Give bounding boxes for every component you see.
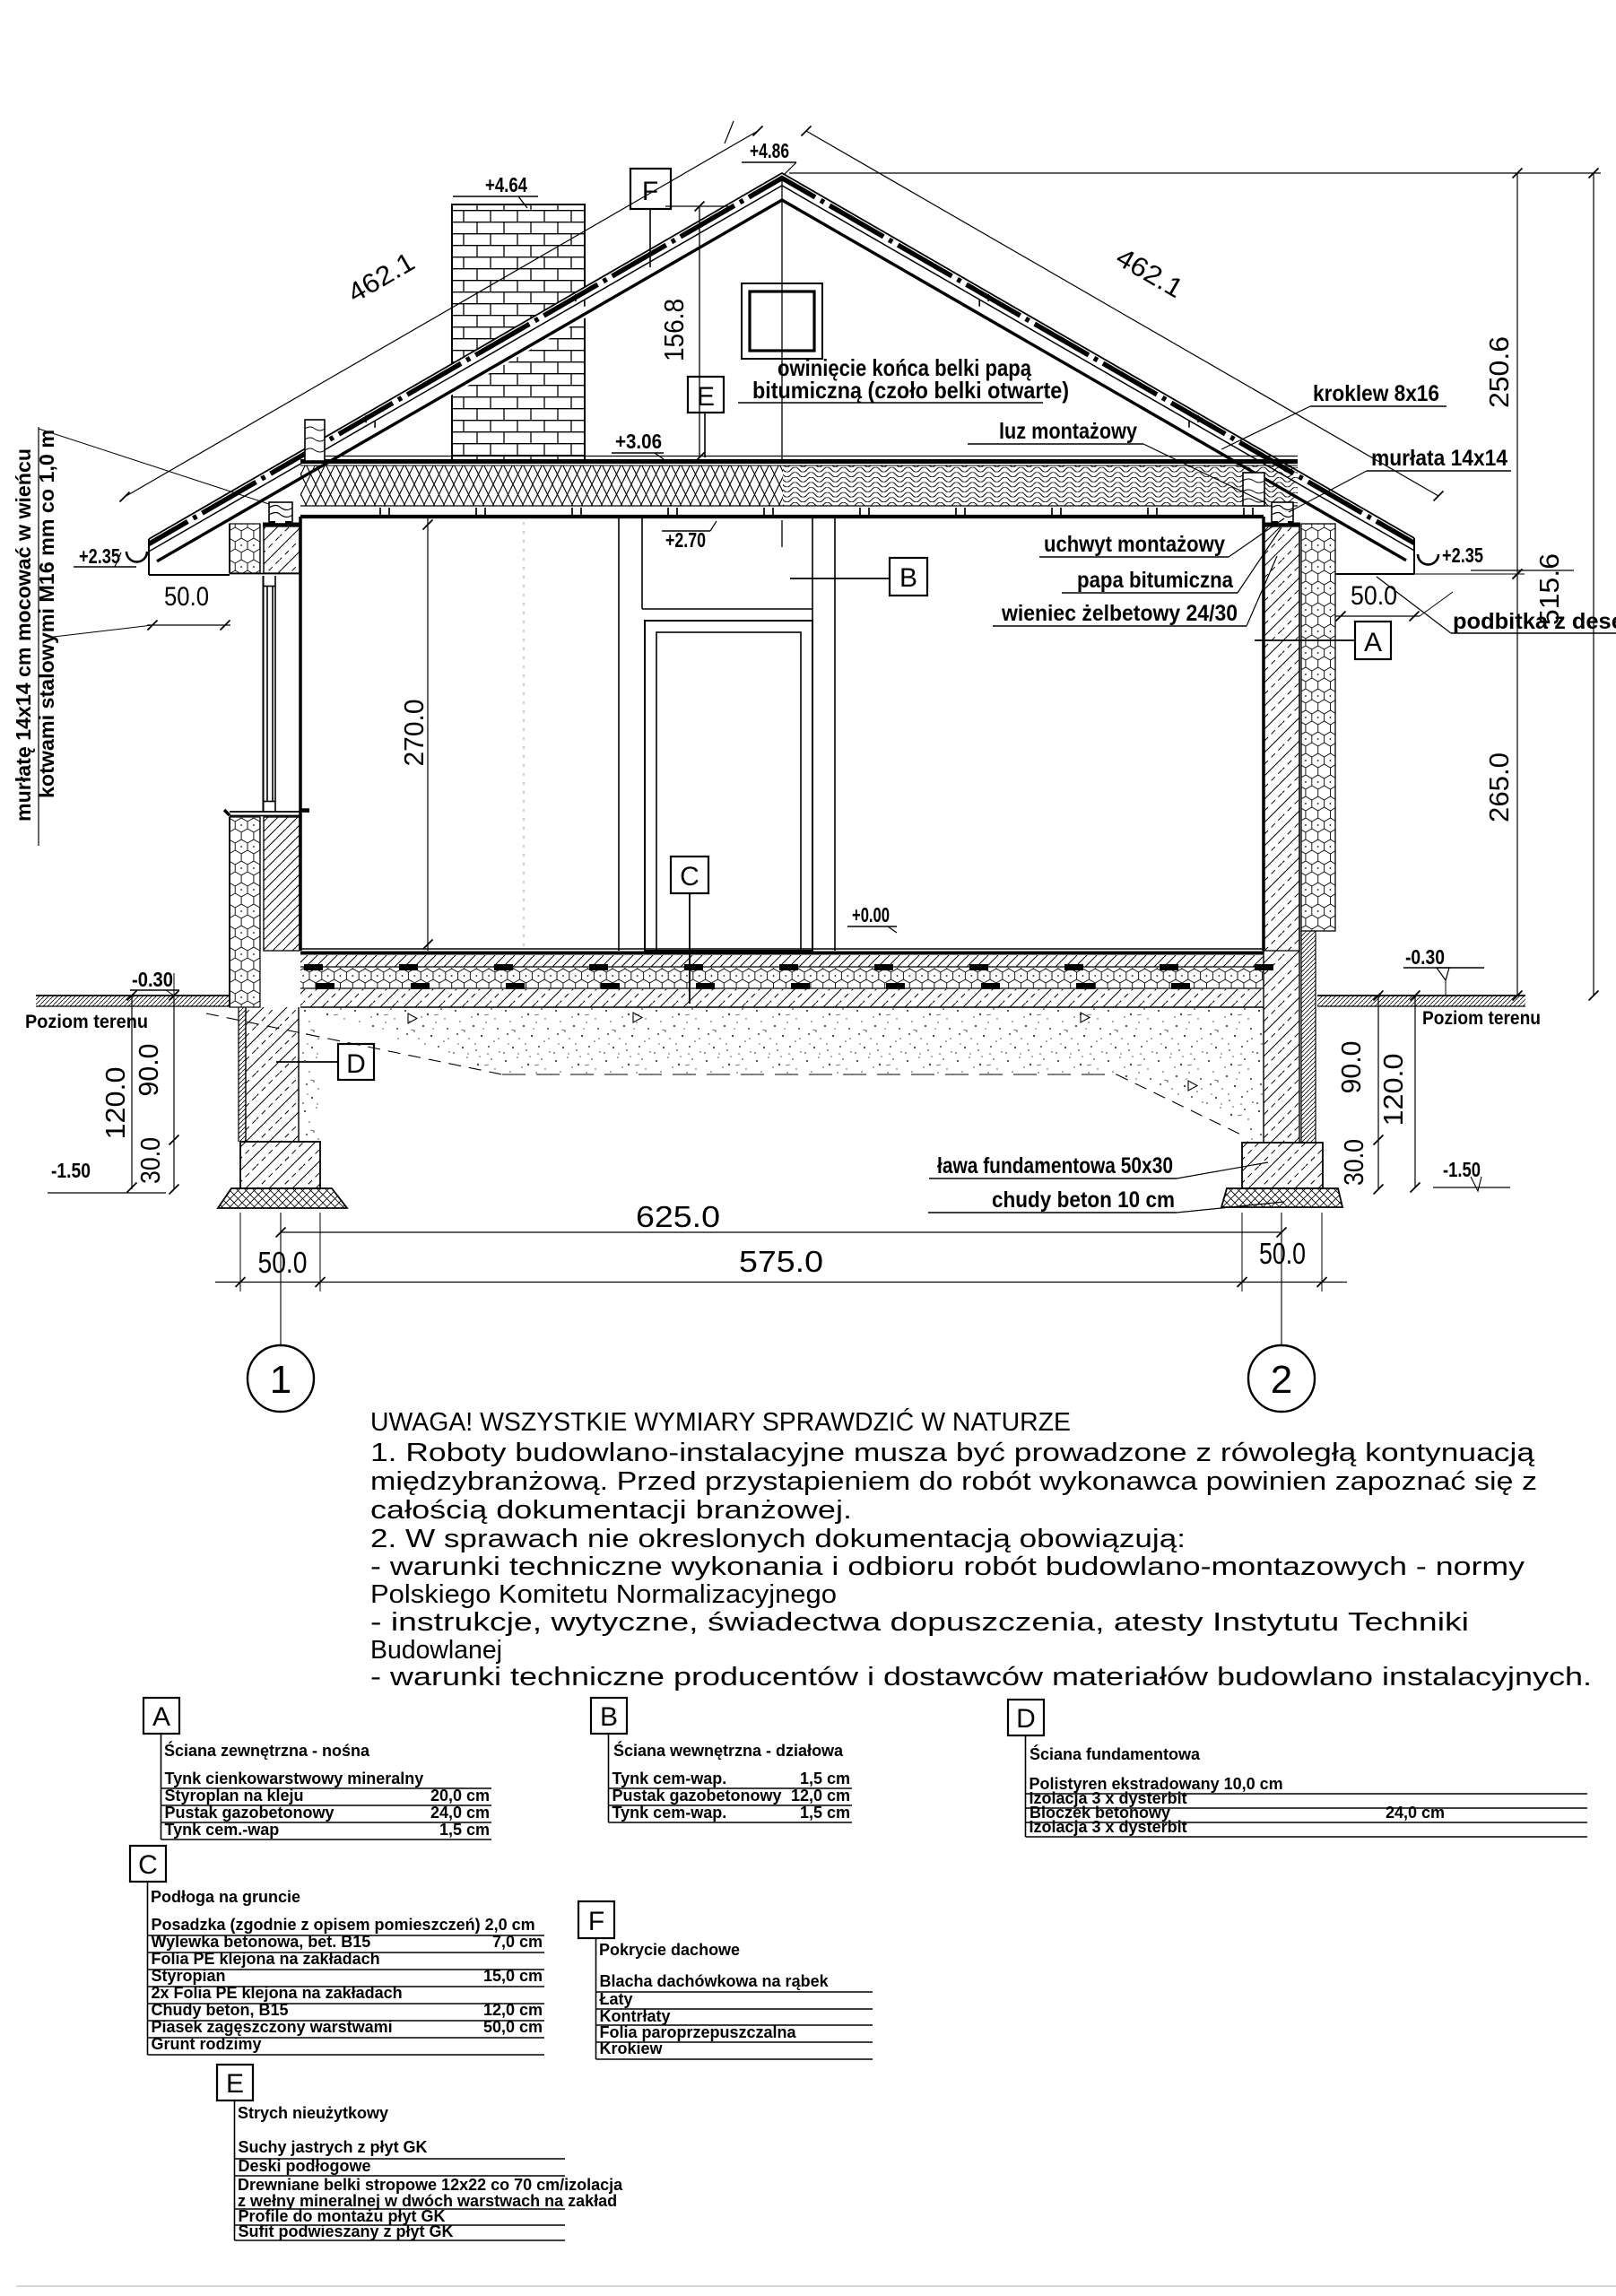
svg-text:E: E xyxy=(226,2069,244,2099)
svg-text:Pustak gazobetonowy: Pustak gazobetonowy xyxy=(613,1787,782,1805)
svg-text:całością dokumentacji branżowe: całością dokumentacji branżowej. xyxy=(370,1496,852,1525)
svg-text:-0.30: -0.30 xyxy=(1405,945,1445,969)
svg-text:murłatę 14x14 cm mocować w wie: murłatę 14x14 cm mocować w wieńcu xyxy=(12,448,35,822)
svg-text:Ściana zewnętrzna - nośna: Ściana zewnętrzna - nośna xyxy=(164,1741,370,1760)
svg-text:Styroplan na kleju: Styroplan na kleju xyxy=(165,1787,304,1805)
svg-text:C: C xyxy=(680,862,699,891)
svg-text:luz montażowy: luz montażowy xyxy=(999,419,1137,444)
svg-text:265.0: 265.0 xyxy=(1483,752,1515,822)
svg-text:-1.50: -1.50 xyxy=(51,1159,91,1182)
svg-text:12,0 cm: 12,0 cm xyxy=(483,2001,543,2019)
svg-text:uchwyt montażowy: uchwyt montażowy xyxy=(1044,532,1225,557)
svg-text:30.0: 30.0 xyxy=(1338,1139,1369,1186)
svg-text:Poziom terenu: Poziom terenu xyxy=(1422,1008,1541,1029)
svg-text:chudy beton 10 cm: chudy beton 10 cm xyxy=(992,1187,1175,1213)
svg-text:50.0: 50.0 xyxy=(258,1246,308,1279)
svg-text:7,0 cm: 7,0 cm xyxy=(492,1933,543,1951)
svg-text:E: E xyxy=(697,382,715,412)
svg-text:1,5 cm: 1,5 cm xyxy=(800,1804,850,1822)
svg-text:575.0: 575.0 xyxy=(739,1245,823,1278)
svg-text:Folia PE klejona na zakładach: Folia PE klejona na zakładach xyxy=(152,1950,380,1968)
svg-text:Styropian: Styropian xyxy=(152,1967,226,1985)
svg-text:-1.50: -1.50 xyxy=(1443,1158,1481,1181)
svg-text:Krokiew: Krokiew xyxy=(600,2039,664,2057)
svg-text:podbitka z desek: podbitka z desek xyxy=(1453,609,1616,634)
svg-text:15,0 cm: 15,0 cm xyxy=(483,1967,543,1985)
svg-text:+2.35: +2.35 xyxy=(79,544,120,568)
svg-text:120.0: 120.0 xyxy=(100,1067,131,1140)
svg-text:24,0 cm: 24,0 cm xyxy=(1386,1804,1445,1822)
svg-text:A: A xyxy=(1364,628,1382,657)
svg-text:Wylewka betonowa, bet. B15: Wylewka betonowa, bet. B15 xyxy=(152,1933,371,1951)
svg-text:B: B xyxy=(899,563,917,593)
svg-text:625.0: 625.0 xyxy=(636,1200,720,1233)
svg-text:papa bitumiczna: papa bitumiczna xyxy=(1077,568,1234,593)
svg-text:-0.30: -0.30 xyxy=(132,968,173,991)
svg-text:A: A xyxy=(152,1702,170,1732)
svg-text:Izolacja 3 x dysterbit: Izolacja 3 x dysterbit xyxy=(1030,1818,1187,1836)
svg-text:250.6: 250.6 xyxy=(1483,336,1515,408)
svg-text:kotwami stalowymi M16 mm co 1,: kotwami stalowymi M16 mm co 1,0 m xyxy=(35,430,58,798)
svg-text:+4.64: +4.64 xyxy=(485,173,527,196)
svg-text:kroklew 8x16: kroklew 8x16 xyxy=(1313,381,1439,406)
svg-text:- instrukcje, wytyczne, świade: - instrukcje, wytyczne, świadectwa dopus… xyxy=(370,1608,1469,1637)
svg-text:Pokrycie dachowe: Pokrycie dachowe xyxy=(599,1941,740,1959)
svg-text:Strych nieużytkowy: Strych nieużytkowy xyxy=(238,2104,388,2122)
svg-text:Polskiego Komitetu Normalizacy: Polskiego Komitetu Normalizacyjnego xyxy=(370,1580,837,1609)
svg-text:Ściana wewnętrzna - działowa: Ściana wewnętrzna - działowa xyxy=(613,1741,844,1760)
svg-text:UWAGA! WSZYSTKIE WYMIARY SPRAW: UWAGA! WSZYSTKIE WYMIARY SPRAWDZIĆ W NAT… xyxy=(370,1407,1071,1437)
svg-text:wieniec żelbetowy 24/30: wieniec żelbetowy 24/30 xyxy=(1001,601,1238,626)
svg-text:12,0 cm: 12,0 cm xyxy=(791,1787,850,1805)
svg-text:90.0: 90.0 xyxy=(1335,1041,1367,1094)
svg-text:24,0 cm: 24,0 cm xyxy=(430,1804,490,1822)
svg-text:50.0: 50.0 xyxy=(1351,581,1397,611)
svg-text:30.0: 30.0 xyxy=(135,1137,166,1184)
svg-text:Tynk cem-wap.: Tynk cem-wap. xyxy=(613,1770,727,1787)
svg-text:Podłoga na gruncie: Podłoga na gruncie xyxy=(151,1888,300,1906)
svg-text:- warunki techniczne wykonania: - warunki techniczne wykonania i odbioru… xyxy=(370,1552,1525,1581)
svg-text:Sufit podwieszany z płyt GK: Sufit podwieszany z płyt GK xyxy=(239,2222,454,2240)
svg-text:Tynk cem-wap.: Tynk cem-wap. xyxy=(613,1804,727,1822)
svg-text:D: D xyxy=(1016,1704,1036,1734)
svg-text:2x Folia PE klejona na zakłada: 2x Folia PE klejona na zakładach xyxy=(152,1984,403,2002)
svg-text:Tynk cienkowarstwowy mineralny: Tynk cienkowarstwowy mineralny xyxy=(165,1770,424,1787)
svg-text:50.0: 50.0 xyxy=(1259,1237,1306,1270)
svg-text:Ściana fundamentowa: Ściana fundamentowa xyxy=(1030,1744,1201,1763)
svg-text:Piasek zagęszczony warstwami: Piasek zagęszczony warstwami xyxy=(152,2018,393,2036)
svg-text:+2.35: +2.35 xyxy=(1442,544,1483,567)
svg-text:120.0: 120.0 xyxy=(1377,1054,1409,1126)
svg-text:murłata 14x14: murłata 14x14 xyxy=(1371,446,1507,471)
svg-text:50,0 cm: 50,0 cm xyxy=(483,2018,543,2036)
svg-text:Drewniane belki stropowe 12x22: Drewniane belki stropowe 12x22 co 70 cm/… xyxy=(238,2176,623,2194)
svg-text:+4.86: +4.86 xyxy=(750,139,789,162)
svg-text:1. Roboty budowlano-instalacyj: 1. Roboty budowlano-instalacyjne musza b… xyxy=(370,1439,1535,1467)
svg-text:Łaty: Łaty xyxy=(600,1990,633,2008)
svg-text:Posadzka (zgodnie z opisem pom: Posadzka (zgodnie z opisem pomieszczeń) … xyxy=(152,1916,535,1934)
svg-text:50.0: 50.0 xyxy=(164,582,209,612)
svg-text:Deski podłogowe: Deski podłogowe xyxy=(239,2157,371,2175)
svg-text:Pustak gazobetonowy: Pustak gazobetonowy xyxy=(165,1804,334,1822)
svg-text:Kontrłaty: Kontrłaty xyxy=(600,2007,671,2025)
svg-text:F: F xyxy=(642,177,658,206)
svg-text:C: C xyxy=(138,1850,158,1880)
svg-text:90.0: 90.0 xyxy=(133,1044,164,1097)
svg-text:D: D xyxy=(346,1049,366,1079)
svg-text:Grunt rodzimy: Grunt rodzimy xyxy=(152,2035,262,2053)
svg-text:Suchy jastrych z płyt GK: Suchy jastrych z płyt GK xyxy=(239,2138,428,2156)
svg-text:F: F xyxy=(588,1907,604,1936)
svg-text:- warunki techniczne producent: - warunki techniczne producentów i dosta… xyxy=(370,1663,1592,1692)
svg-text:B: B xyxy=(600,1702,618,1732)
svg-text:Blacha dachówkowa na rąbek: Blacha dachówkowa na rąbek xyxy=(600,1972,830,1990)
svg-text:Folia paroprzepuszczalna: Folia paroprzepuszczalna xyxy=(600,2023,797,2041)
svg-text:+0.00: +0.00 xyxy=(852,903,890,926)
svg-text:+3.06: +3.06 xyxy=(615,430,662,453)
svg-text:+2.70: +2.70 xyxy=(665,528,706,552)
svg-text:270.0: 270.0 xyxy=(398,700,430,767)
svg-text:międzybranżową. Przed przystap: międzybranżową. Przed przystapieniem do … xyxy=(370,1467,1537,1496)
svg-text:ława fundamentowa 50x30: ława fundamentowa 50x30 xyxy=(937,1153,1173,1178)
svg-text:Budowlanej: Budowlanej xyxy=(370,1636,502,1665)
svg-text:Chudy beton, B15: Chudy beton, B15 xyxy=(152,2001,289,2019)
svg-text:2. W sprawach nie okreslonych: 2. W sprawach nie okreslonych dokumentac… xyxy=(370,1525,1186,1553)
svg-text:Poziom terenu: Poziom terenu xyxy=(25,1012,148,1032)
svg-text:20,0 cm: 20,0 cm xyxy=(430,1787,490,1805)
svg-text:1,5 cm: 1,5 cm xyxy=(439,1821,490,1839)
svg-text:Tynk cem.-wap: Tynk cem.-wap xyxy=(165,1821,280,1839)
svg-text:156.8: 156.8 xyxy=(658,299,690,361)
svg-text:2: 2 xyxy=(1271,1358,1292,1402)
svg-text:1,5 cm: 1,5 cm xyxy=(800,1770,850,1787)
svg-text:1: 1 xyxy=(270,1358,291,1402)
svg-text:bitumiczną (czoło belki otwart: bitumiczną (czoło belki otwarte) xyxy=(752,377,1069,404)
